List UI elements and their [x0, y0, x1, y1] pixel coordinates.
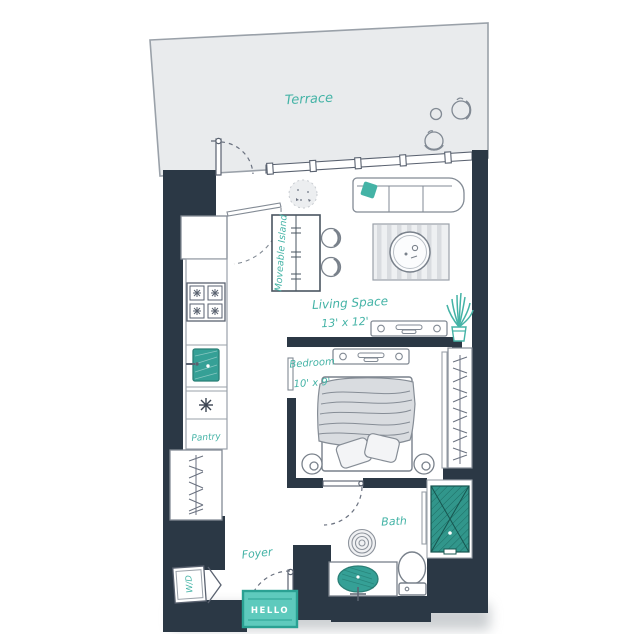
toilet-icon	[399, 552, 427, 595]
vanity-sink-icon	[329, 562, 397, 601]
window-mullion	[355, 158, 362, 169]
media-console-icon	[371, 321, 447, 336]
terrace-label: Terrace	[285, 91, 334, 108]
terrace: Terrace	[150, 23, 488, 176]
bedroom: Bedroom 10' x 9'	[288, 348, 472, 474]
bath-label: Bath	[381, 514, 407, 528]
plant-icon	[447, 293, 473, 341]
blanket	[318, 378, 415, 446]
doormat: HELLO	[243, 591, 297, 627]
bedroom-label: Bedroom	[289, 356, 335, 370]
moveable-island: Moveable Island	[272, 213, 341, 292]
pantry-closet	[170, 450, 222, 520]
bedside-caster-icon	[414, 454, 434, 474]
kitchen: Pantry	[170, 203, 281, 520]
washer-dryer-label: W/D	[184, 574, 195, 593]
bath-door	[323, 481, 363, 525]
closet-door-open-icon	[208, 567, 221, 603]
area-rug	[373, 224, 449, 280]
floor-plan-svg: Terrace	[0, 0, 634, 634]
closet-sliding-door	[442, 352, 447, 468]
bar-stool-icon	[322, 258, 341, 277]
washer-dryer-icon: W/D	[173, 566, 206, 603]
bath-rug-icon	[349, 530, 376, 557]
window-mullion	[310, 160, 317, 171]
floor-plan-image: Terrace	[0, 0, 634, 634]
shower-icon	[422, 480, 472, 558]
shower-glass-door	[422, 492, 426, 544]
window-mullion	[400, 155, 407, 166]
pouf-icon	[289, 180, 317, 208]
stove-icon	[187, 283, 225, 321]
living-label: Living Space	[312, 294, 389, 312]
pantry-label: Pantry	[191, 432, 222, 444]
bedroom-closet	[442, 348, 472, 468]
dishwasher-icon	[199, 398, 213, 412]
bed-icon	[318, 377, 415, 471]
dresser-icon	[333, 349, 409, 364]
foyer-label: Foyer	[241, 545, 275, 561]
bar-stool-icon	[322, 229, 341, 248]
doormat-text: HELLO	[251, 606, 289, 616]
door-swing-arc	[324, 487, 362, 525]
window-mullion	[445, 152, 452, 163]
window-mullion	[267, 163, 274, 174]
bedside-caster-icon	[302, 454, 322, 474]
sofa-icon	[353, 178, 464, 212]
coffee-table-icon	[390, 232, 430, 272]
living-dimensions: 13' x 12'	[321, 315, 369, 330]
